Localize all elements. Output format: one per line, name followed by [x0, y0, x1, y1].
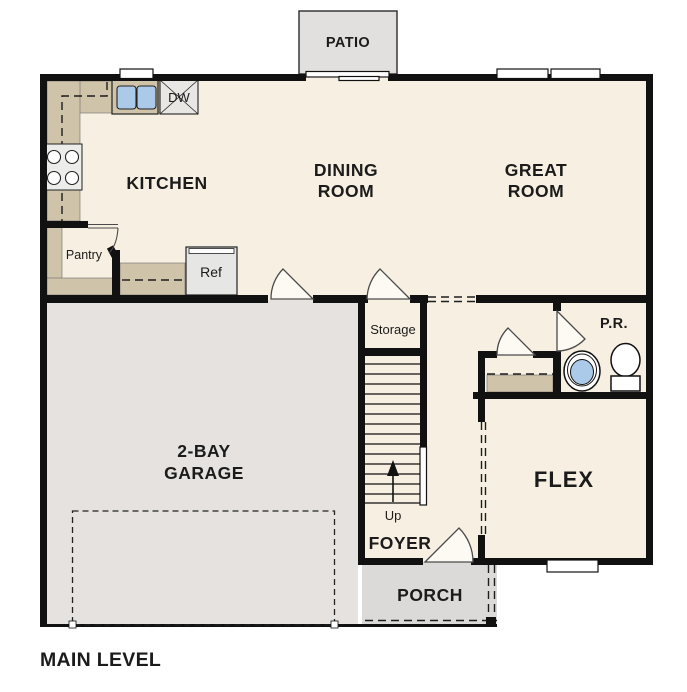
flex-window [547, 560, 598, 572]
stair-railing [420, 447, 427, 505]
great-room-window-2 [551, 69, 600, 79]
storage-label: Storage [370, 322, 416, 337]
porch-label: PORCH [397, 585, 463, 605]
patio-slider-inner [339, 77, 379, 81]
great-room-label-2: ROOM [508, 181, 564, 201]
foyer-label: FOYER [369, 533, 432, 553]
great-room-window-1 [497, 69, 548, 79]
flex-label: FLEX [534, 467, 594, 492]
ref-label: Ref [200, 264, 222, 280]
kitchen-sink [112, 80, 158, 114]
kitchen-window [120, 69, 153, 79]
up-label: Up [385, 508, 402, 523]
floor-plan-canvas: PATIO KITCHEN DINING ROOM GREAT ROOM Pan… [0, 0, 687, 687]
dining-room-label-1: DINING [314, 160, 378, 180]
powder-room-sink [564, 351, 600, 391]
stove [44, 144, 82, 190]
porch-post [486, 617, 496, 626]
great-room-label-1: GREAT [505, 160, 567, 180]
garage-label-1: 2-BAY [177, 441, 230, 461]
dining-room-label-2: ROOM [318, 181, 374, 201]
kitchen-label: KITCHEN [126, 173, 207, 193]
floor-plan: PATIO KITCHEN DINING ROOM GREAT ROOM Pan… [0, 0, 687, 687]
plan-title: MAIN LEVEL [40, 649, 161, 671]
powder-room-label: P.R. [600, 316, 628, 332]
closet-shelf [487, 375, 553, 392]
pantry-label: Pantry [66, 248, 103, 262]
patio-label: PATIO [326, 35, 370, 51]
toilet [611, 344, 640, 392]
dw-label: DW [168, 90, 190, 105]
garage-label-2: GARAGE [164, 463, 244, 483]
